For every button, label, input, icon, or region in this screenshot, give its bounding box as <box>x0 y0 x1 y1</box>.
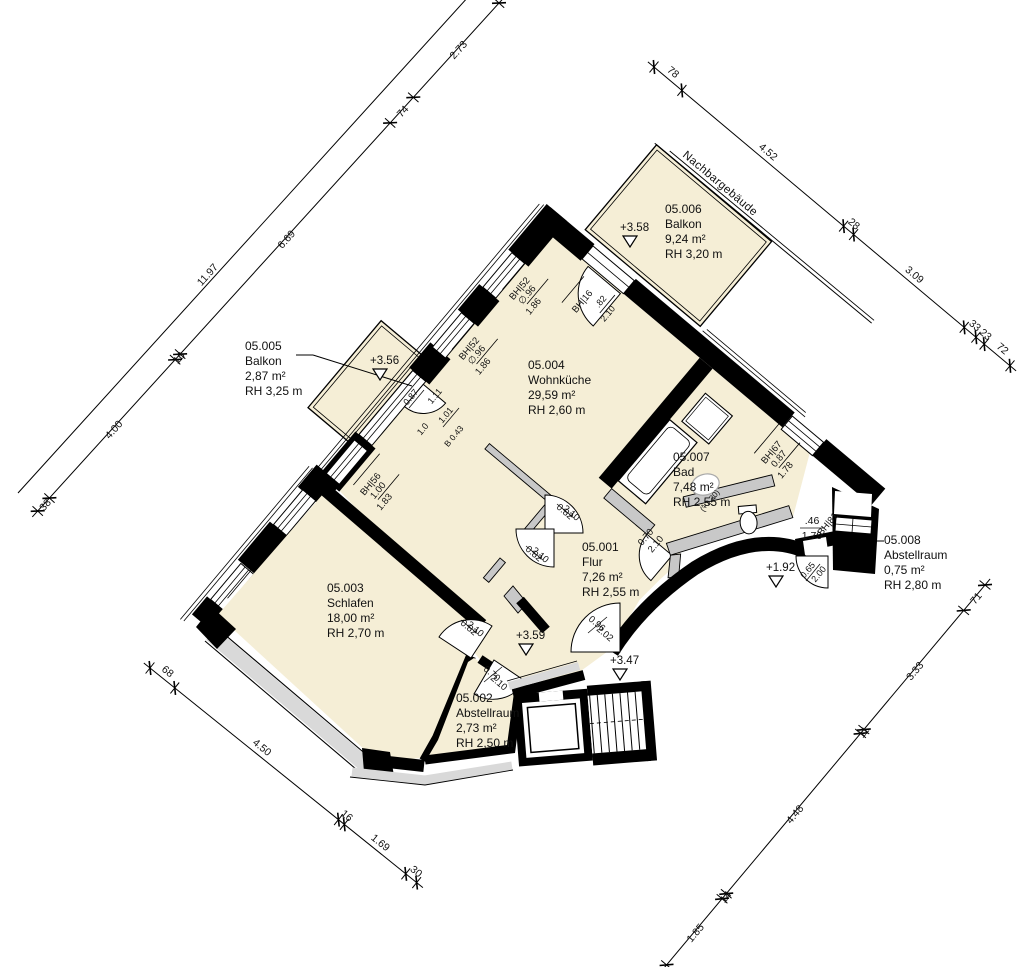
svg-text:Abstellraum: Abstellraum <box>456 706 519 720</box>
svg-text:+3.58: +3.58 <box>620 222 649 234</box>
svg-text:29,59 m²: 29,59 m² <box>528 388 575 402</box>
svg-text:Schlafen: Schlafen <box>327 596 374 610</box>
svg-text:+3.47: +3.47 <box>610 655 639 667</box>
svg-text:05.001: 05.001 <box>582 540 619 554</box>
svg-text:18,00 m²: 18,00 m² <box>327 611 374 625</box>
svg-text:2,73 m²: 2,73 m² <box>456 721 497 735</box>
svg-text:7,48 m²: 7,48 m² <box>673 480 714 494</box>
svg-text:+3.56: +3.56 <box>370 355 399 367</box>
svg-text:RH 2,70 m: RH 2,70 m <box>327 626 384 640</box>
svg-text:+3.59: +3.59 <box>516 630 545 642</box>
svg-text:Bad: Bad <box>673 465 694 479</box>
svg-text:+1.92: +1.92 <box>766 562 795 574</box>
svg-text:RH 3,25 m: RH 3,25 m <box>245 384 302 398</box>
svg-text:RH 2,50 m: RH 2,50 m <box>456 736 513 750</box>
svg-text:05.003: 05.003 <box>327 581 364 595</box>
svg-text:Flur: Flur <box>582 555 603 569</box>
svg-text:2,87 m²: 2,87 m² <box>245 369 286 383</box>
svg-text:RH 2,55 m: RH 2,55 m <box>582 585 639 599</box>
svg-text:RH 2,60 m: RH 2,60 m <box>528 403 585 417</box>
svg-text:Balkon: Balkon <box>665 217 702 231</box>
svg-text:Balkon: Balkon <box>245 354 282 368</box>
svg-text:RH 3,20 m: RH 3,20 m <box>665 247 722 261</box>
svg-text:05.004: 05.004 <box>528 358 565 372</box>
svg-text:Wohnküche: Wohnküche <box>528 373 591 387</box>
svg-text:RH 2,80 m: RH 2,80 m <box>884 578 941 592</box>
svg-text:RH 2,55 m: RH 2,55 m <box>673 495 730 509</box>
svg-text:Abstellraum: Abstellraum <box>884 548 947 562</box>
svg-text:05.007: 05.007 <box>673 450 710 464</box>
svg-text:0,75 m²: 0,75 m² <box>884 563 925 577</box>
svg-text:05.005: 05.005 <box>245 339 282 353</box>
svg-text:9,24 m²: 9,24 m² <box>665 232 706 246</box>
svg-text:05.006: 05.006 <box>665 202 702 216</box>
svg-text:7,26 m²: 7,26 m² <box>582 570 623 584</box>
svg-text:05.002: 05.002 <box>456 691 493 705</box>
svg-text:05.008: 05.008 <box>884 533 921 547</box>
svg-text:.46: .46 <box>805 515 820 527</box>
